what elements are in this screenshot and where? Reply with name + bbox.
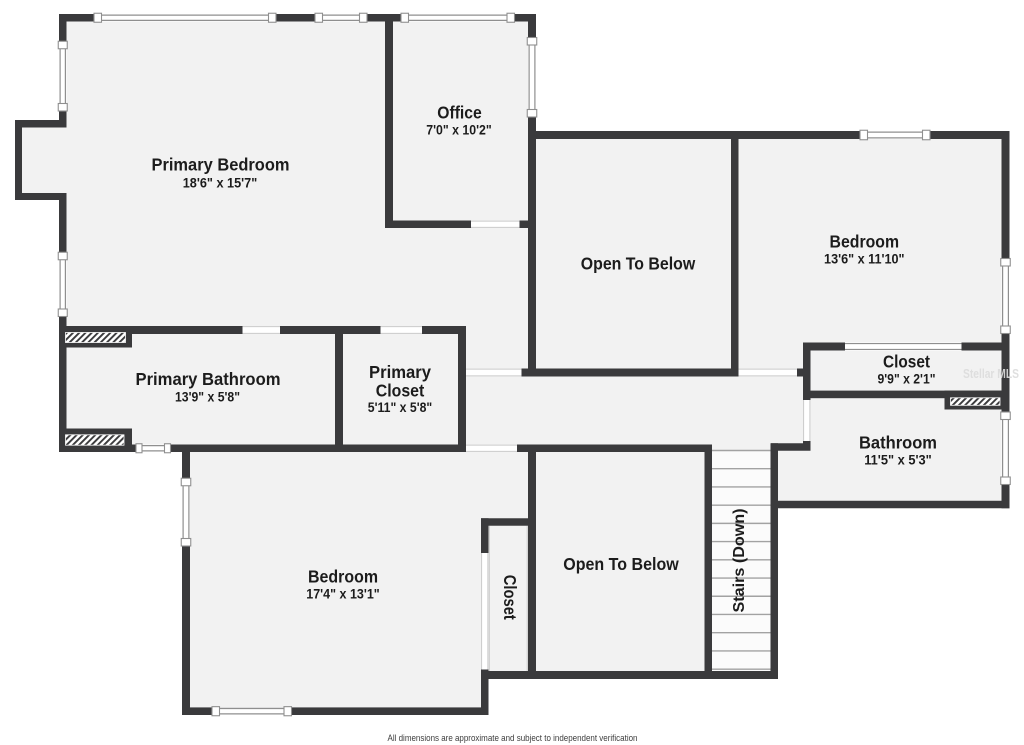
svg-text:17'4" x 13'1": 17'4" x 13'1" bbox=[306, 587, 380, 603]
svg-text:Primary Bathroom: Primary Bathroom bbox=[136, 369, 281, 389]
svg-text:Bathroom: Bathroom bbox=[859, 433, 937, 453]
svg-text:13'9" x 5'8": 13'9" x 5'8" bbox=[175, 390, 240, 406]
svg-text:Stellar MLS: Stellar MLS bbox=[963, 367, 1019, 381]
svg-text:Stairs (Down): Stairs (Down) bbox=[731, 509, 748, 613]
svg-text:Bedroom: Bedroom bbox=[830, 232, 900, 252]
svg-text:Open To Below: Open To Below bbox=[581, 254, 696, 274]
svg-text:Primary Bedroom: Primary Bedroom bbox=[152, 155, 290, 175]
svg-text:18'6" x 15'7": 18'6" x 15'7" bbox=[183, 176, 258, 192]
svg-text:Closet: Closet bbox=[883, 352, 930, 372]
svg-text:5'11" x 5'8": 5'11" x 5'8" bbox=[368, 400, 433, 416]
svg-text:11'5" x 5'3": 11'5" x 5'3" bbox=[864, 453, 932, 469]
svg-text:All dimensions are approximate: All dimensions are approximate and subje… bbox=[388, 733, 638, 743]
svg-text:Closet: Closet bbox=[376, 381, 425, 401]
svg-text:9'9" x 2'1": 9'9" x 2'1" bbox=[878, 372, 936, 388]
svg-text:Office: Office bbox=[437, 103, 482, 123]
svg-text:7'0" x 10'2": 7'0" x 10'2" bbox=[426, 123, 492, 139]
svg-text:Open To Below: Open To Below bbox=[563, 554, 679, 574]
svg-text:13'6" x 11'10": 13'6" x 11'10" bbox=[824, 252, 905, 268]
svg-text:Primary: Primary bbox=[369, 362, 431, 382]
svg-text:Bedroom: Bedroom bbox=[308, 567, 378, 587]
svg-text:Closet: Closet bbox=[500, 575, 520, 620]
